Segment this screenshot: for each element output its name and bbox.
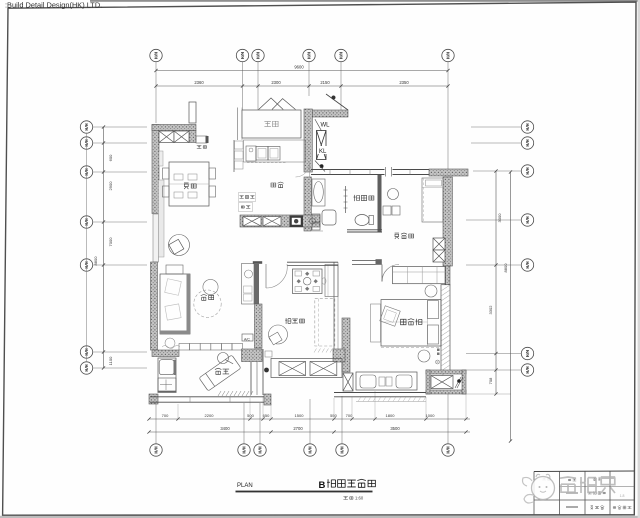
svg-text:KL: KL xyxy=(319,149,327,155)
svg-text:500: 500 xyxy=(247,413,254,418)
svg-text:2700: 2700 xyxy=(293,426,303,431)
svg-text:7000: 7000 xyxy=(108,237,113,247)
svg-text:2200: 2200 xyxy=(205,413,215,418)
svg-text:B: B xyxy=(319,480,326,491)
svg-text:2900: 2900 xyxy=(108,181,113,191)
svg-text::Build Detail Design(HK) LTD.: :Build Detail Design(HK) LTD. xyxy=(5,1,102,10)
svg-text:8800: 8800 xyxy=(503,263,508,273)
svg-text:2360: 2360 xyxy=(194,80,204,85)
svg-text:1800: 1800 xyxy=(386,413,396,418)
svg-text:600: 600 xyxy=(108,154,113,161)
svg-text:WL: WL xyxy=(321,123,331,129)
svg-text:1.8: 1.8 xyxy=(620,494,625,498)
svg-text:2150: 2150 xyxy=(320,80,330,85)
svg-text:1:60: 1:60 xyxy=(355,496,364,501)
svg-text:PLAN: PLAN xyxy=(237,483,253,489)
svg-text:650: 650 xyxy=(263,413,270,418)
svg-text:1000: 1000 xyxy=(426,413,436,418)
svg-text:3400: 3400 xyxy=(220,426,230,431)
svg-text:3500: 3500 xyxy=(390,426,400,431)
svg-text:9600: 9600 xyxy=(294,65,304,70)
svg-text:3000: 3000 xyxy=(497,213,502,223)
svg-text:1100: 1100 xyxy=(108,356,113,365)
svg-text:2350: 2350 xyxy=(399,80,409,85)
svg-text:2300: 2300 xyxy=(271,80,281,85)
svg-text:3302: 3302 xyxy=(488,305,493,315)
svg-text:700: 700 xyxy=(162,413,169,418)
svg-text:708: 708 xyxy=(488,377,493,384)
svg-text:1500: 1500 xyxy=(295,413,305,418)
svg-text:8800: 8800 xyxy=(93,256,98,266)
svg-text:A/C: A/C xyxy=(244,338,250,342)
